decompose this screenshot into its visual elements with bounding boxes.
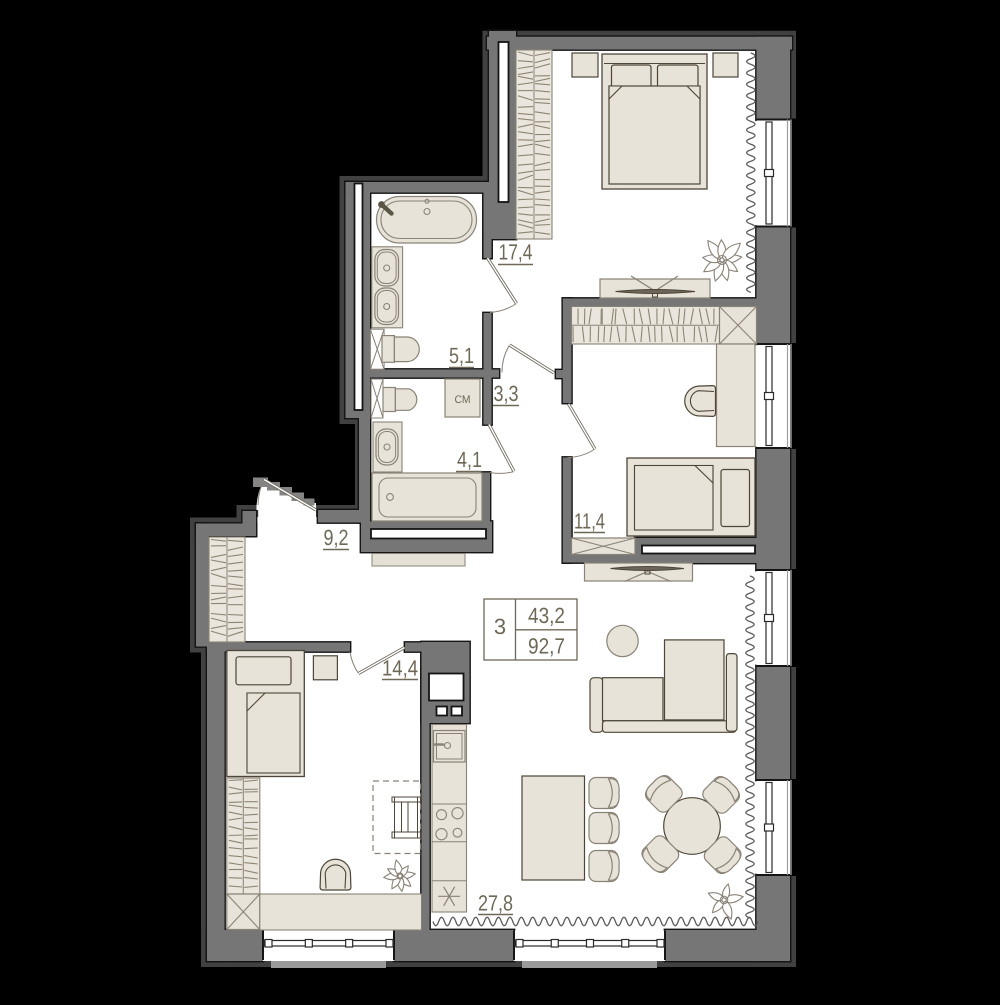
svg-text:14,4: 14,4 <box>382 656 418 681</box>
svg-text:5,1: 5,1 <box>449 343 474 368</box>
svg-text:92,7: 92,7 <box>528 634 565 659</box>
svg-text:СМ: СМ <box>455 394 471 406</box>
svg-text:17,4: 17,4 <box>499 240 533 265</box>
svg-text:3,3: 3,3 <box>494 381 519 406</box>
svg-text:27,8: 27,8 <box>478 891 513 916</box>
svg-text:9,2: 9,2 <box>324 525 349 550</box>
svg-text:43,2: 43,2 <box>528 603 565 628</box>
svg-text:11,4: 11,4 <box>574 509 605 534</box>
svg-text:4,1: 4,1 <box>457 447 482 472</box>
svg-text:3: 3 <box>494 614 506 639</box>
